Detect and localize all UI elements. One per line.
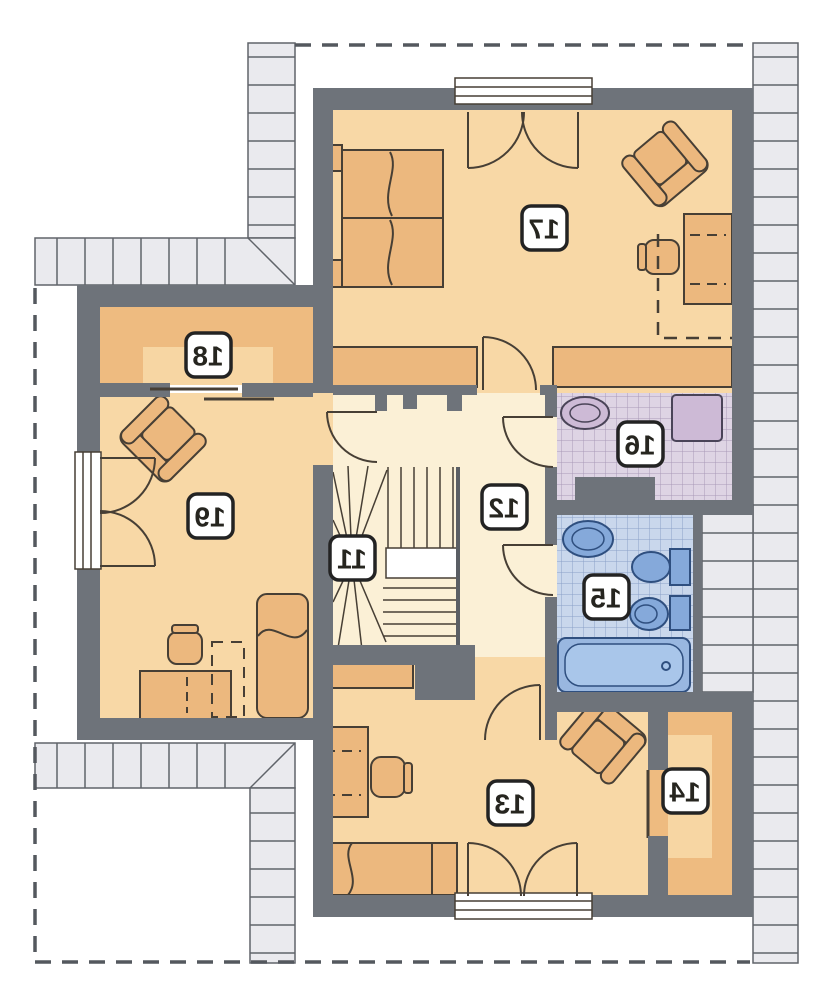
room-label-15: 15 [584,575,629,619]
window-south [455,893,592,919]
stair-void [386,548,458,578]
wall-post [403,393,417,409]
floor-plan-drawing: 11 12 13 14 15 16 17 18 [0,0,840,1000]
svg-text:15: 15 [590,583,621,614]
double-bed [342,150,443,287]
bathtub [558,638,690,692]
desk [140,671,231,719]
wall-post [447,393,462,411]
room-label-18: 18 [186,333,231,377]
room-label-16: 16 [618,422,663,466]
bidet [630,596,690,630]
washbasin [561,397,609,429]
room-label-12: 12 [482,485,527,529]
single-bed [318,843,457,895]
washing-machine [672,395,722,441]
desk-chair [168,625,202,664]
svg-text:13: 13 [494,789,525,820]
window-west [75,452,101,569]
svg-text:16: 16 [624,430,655,461]
svg-text:17: 17 [528,214,559,245]
svg-text:11: 11 [337,544,367,575]
wardrobe-unit [553,347,732,387]
daybed [257,594,308,718]
svg-text:12: 12 [488,493,519,524]
floor-corridor [333,393,557,465]
balcony-door-window [455,78,592,104]
desk [684,214,732,304]
room-label-17: 17 [522,206,567,250]
wall-nib [372,649,389,663]
room-label-14: 14 [663,769,708,813]
wardrobe-unit [320,347,477,387]
svg-text:14: 14 [669,777,701,808]
room-label-19: 19 [188,494,233,538]
desk-chair [371,757,412,797]
floor-plan: 11 12 13 14 15 16 17 18 [0,0,840,1000]
chimney [575,477,655,515]
room-label-13: 13 [488,781,533,825]
wall-post [375,393,387,411]
room-label-11: 11 [330,536,375,580]
svg-text:19: 19 [194,502,225,533]
chimney [415,645,475,700]
washbasin [563,521,613,557]
svg-text:18: 18 [192,341,223,372]
toilet [632,549,690,585]
